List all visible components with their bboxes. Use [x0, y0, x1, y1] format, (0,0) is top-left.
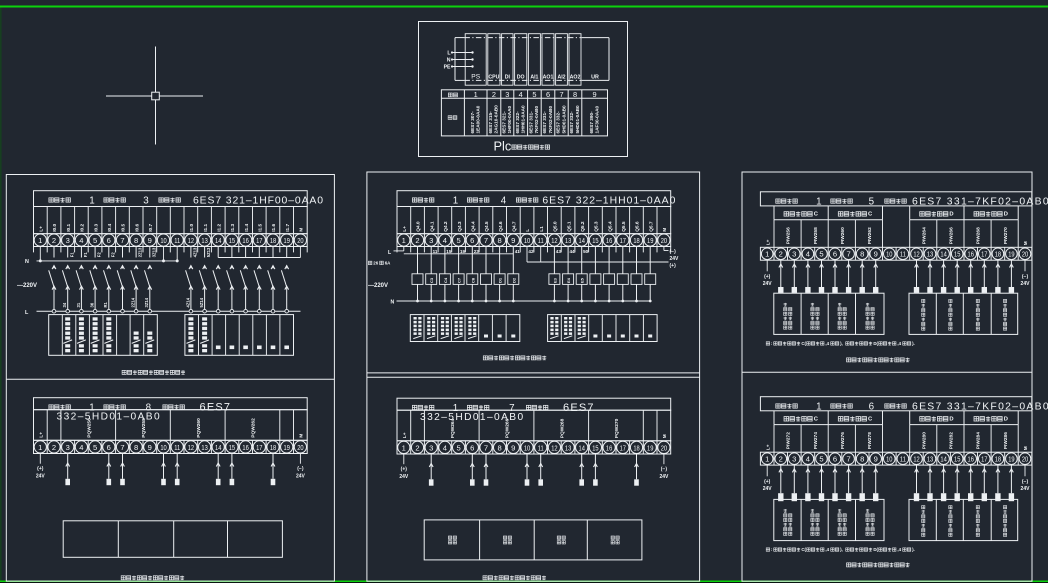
svg-text:11: 11 [900, 251, 906, 259]
svg-text:16: 16 [606, 238, 613, 246]
svg-text:12: 12 [913, 456, 920, 464]
svg-text:I0.7: I0.7 [148, 223, 154, 231]
svg-text:14: 14 [940, 456, 947, 464]
svg-text:5: 5 [532, 90, 536, 99]
svg-text:Q5.7: Q5.7 [648, 221, 654, 232]
svg-text:),: ), [840, 547, 843, 552]
svg-text:6ES7 315-: 6ES7 315- [488, 111, 493, 134]
svg-text:44: 44 [570, 249, 576, 254]
svg-text:24V: 24V [1021, 281, 1031, 287]
svg-text:7: 7 [120, 443, 124, 452]
svg-text:C3: C3 [429, 277, 434, 283]
svg-text:6: 6 [107, 236, 111, 245]
svg-text:PIW258: PIW258 [813, 227, 819, 244]
svg-text:1: 1 [402, 236, 406, 245]
svg-text:F1: F1 [69, 252, 74, 258]
svg-text:I0.1: I0.1 [66, 223, 72, 231]
svg-text:2: 2 [779, 455, 783, 464]
svg-text:19: 19 [1008, 251, 1015, 259]
svg-text:31: 31 [76, 302, 81, 307]
svg-text:9: 9 [874, 250, 878, 259]
svg-text:16: 16 [242, 444, 249, 452]
svg-text:PIW274: PIW274 [813, 432, 819, 449]
svg-text:14: 14 [215, 238, 222, 246]
svg-text:I1.4: I1.4 [244, 223, 250, 231]
svg-text:1: 1 [38, 443, 42, 452]
svg-text:4: 4 [806, 455, 810, 464]
svg-text:19: 19 [460, 249, 466, 254]
svg-text:UR: UR [591, 75, 599, 81]
svg-text:6ES7: 6ES7 [563, 402, 595, 414]
svg-text:I0.0: I0.0 [52, 223, 58, 231]
svg-text:8: 8 [573, 90, 577, 99]
svg-text:I0.4: I0.4 [107, 223, 113, 231]
svg-text:3: 3 [792, 250, 796, 259]
svg-text:13: 13 [927, 456, 934, 464]
svg-text:7: 7 [484, 443, 488, 452]
svg-text:PQW264: PQW264 [450, 418, 456, 438]
svg-text:Q5.6: Q5.6 [635, 221, 641, 232]
svg-text:19: 19 [284, 238, 291, 246]
svg-text:M: M [299, 434, 305, 438]
svg-text:Q5.0: Q5.0 [553, 221, 559, 232]
svg-text:C4: C4 [443, 277, 448, 283]
svg-text:4: 4 [443, 443, 447, 452]
svg-text:L+: L+ [39, 226, 45, 232]
svg-text:24V: 24V [36, 474, 46, 480]
svg-text:4: 4 [501, 195, 507, 206]
svg-text:3Z13: 3Z13 [151, 247, 156, 257]
svg-text:Q5.1: Q5.1 [566, 221, 572, 232]
svg-text:PIW268: PIW268 [976, 227, 982, 244]
svg-text:6: 6 [833, 250, 837, 259]
svg-text:6ES7 321-: 6ES7 321- [502, 111, 507, 134]
svg-text:Q5.5: Q5.5 [621, 221, 627, 232]
svg-text:14: 14 [940, 251, 947, 259]
svg-text:8: 8 [497, 443, 501, 452]
svg-text:I1.6: I1.6 [271, 223, 277, 231]
svg-text:9: 9 [511, 443, 515, 452]
svg-text:13: 13 [565, 445, 572, 453]
svg-text:11: 11 [900, 456, 906, 464]
svg-text:E4: E4 [566, 277, 571, 283]
svg-text:11: 11 [174, 444, 180, 452]
svg-text:6: 6 [546, 90, 550, 99]
svg-text:3: 3 [66, 443, 70, 452]
svg-text:5Z14: 5Z14 [199, 297, 204, 307]
svg-text:M: M [1023, 446, 1029, 450]
svg-text:2: 2 [52, 236, 56, 245]
svg-text:20: 20 [1022, 456, 1029, 464]
svg-text:3: 3 [505, 90, 509, 99]
svg-text:PQW262: PQW262 [251, 418, 257, 438]
svg-text:Q5.2: Q5.2 [580, 221, 586, 232]
svg-text:6ES7 332-: 6ES7 332- [556, 111, 561, 134]
svg-text:42: 42 [528, 249, 534, 254]
svg-text:50: 50 [583, 249, 589, 254]
svg-text:6ES7 322-: 6ES7 322- [515, 111, 520, 134]
svg-text:PIW260: PIW260 [840, 227, 846, 244]
svg-text:2Z13: 2Z13 [138, 247, 143, 257]
svg-text:7: 7 [846, 250, 850, 259]
svg-text:PIW276: PIW276 [840, 432, 846, 449]
svg-text:6A: 6A [385, 260, 391, 265]
svg-text:I0.6: I0.6 [134, 223, 140, 231]
svg-text:7: 7 [484, 236, 488, 245]
svg-text:1HH01-0AA0: 1HH01-0AA0 [521, 105, 526, 134]
svg-text:6: 6 [869, 401, 875, 412]
svg-text:1: 1 [765, 455, 769, 464]
svg-text:1EA00-0AA0: 1EA00-0AA0 [476, 105, 481, 133]
svg-text:AO1: AO1 [543, 75, 554, 81]
svg-text:19: 19 [647, 445, 654, 453]
svg-text:18: 18 [270, 238, 277, 246]
svg-text:(−): (−) [297, 466, 304, 472]
svg-text:L: L [525, 229, 531, 232]
svg-text:3: 3 [792, 455, 796, 464]
svg-text:D2: D2 [511, 277, 516, 283]
svg-text:23: 23 [474, 249, 480, 254]
svg-text:1: 1 [474, 90, 478, 99]
svg-text:—220V: —220V [17, 283, 37, 289]
svg-text:18: 18 [995, 456, 1002, 464]
svg-text:2AG10-0AB0: 2AG10-0AB0 [494, 105, 499, 134]
svg-text:8: 8 [134, 443, 138, 452]
svg-text:24V: 24V [1021, 486, 1031, 492]
svg-text:PIW262: PIW262 [867, 227, 873, 244]
svg-text:F1: F1 [83, 252, 88, 258]
svg-text:17: 17 [981, 251, 988, 259]
svg-text:F2: F2 [97, 252, 102, 258]
svg-text:1: 1 [38, 236, 42, 245]
svg-text:6: 6 [470, 236, 474, 245]
svg-text:PIW282: PIW282 [949, 432, 955, 449]
svg-text:6ES7: 6ES7 [200, 402, 232, 414]
svg-text:11: 11 [433, 249, 438, 254]
svg-text:(−): (−) [1022, 274, 1029, 280]
svg-text:18: 18 [270, 444, 277, 452]
svg-text:PQW268: PQW268 [559, 418, 565, 438]
svg-text:5: 5 [819, 455, 823, 464]
svg-text:1: 1 [453, 195, 458, 206]
svg-text:PQW256: PQW256 [86, 418, 92, 438]
svg-text:PE: PE [444, 65, 451, 71]
svg-text:7: 7 [559, 90, 563, 99]
svg-text:43: 43 [556, 249, 562, 254]
svg-text:D(: D( [873, 341, 878, 346]
svg-text:Q4.3: Q4.3 [457, 221, 463, 232]
svg-text:PIW272: PIW272 [786, 432, 792, 449]
svg-text:D: D [1004, 417, 1008, 423]
svg-text:4: 4 [519, 90, 523, 99]
svg-text:4Z13: 4Z13 [193, 247, 198, 257]
svg-text:AO2: AO2 [570, 75, 581, 81]
svg-text:24V: 24V [670, 256, 680, 262]
svg-text:19: 19 [284, 444, 291, 452]
svg-text:13: 13 [201, 238, 208, 246]
svg-text:16: 16 [968, 456, 975, 464]
svg-text:R1: R1 [103, 301, 108, 307]
svg-text:2Z14: 2Z14 [131, 297, 136, 307]
svg-text:L+: L+ [765, 239, 771, 245]
svg-text:PIW264: PIW264 [921, 227, 927, 244]
svg-text:16: 16 [242, 238, 249, 246]
svg-text:14: 14 [215, 444, 222, 452]
svg-text:3: 3 [429, 443, 433, 452]
svg-text:DO: DO [517, 75, 525, 81]
svg-text:36: 36 [90, 302, 95, 307]
svg-text:Q4.2: Q4.2 [443, 221, 449, 232]
svg-text:PQW258: PQW258 [141, 418, 147, 438]
svg-text:Q4.0: Q4.0 [416, 221, 422, 232]
svg-text:19: 19 [647, 238, 654, 246]
svg-text:12: 12 [551, 445, 558, 453]
svg-text:6ES7 321–1HF00–0AA0: 6ES7 321–1HF00–0AA0 [193, 196, 324, 207]
svg-text:14: 14 [579, 445, 586, 453]
svg-text:PIW286: PIW286 [1003, 432, 1009, 449]
svg-text:Q5.4: Q5.4 [607, 221, 613, 232]
svg-text:E5: E5 [580, 277, 585, 283]
svg-text:(+): (+) [401, 467, 408, 473]
svg-text:6ES7 331–7KF02–0AB0: 6ES7 331–7KF02–0AB0 [912, 402, 1048, 413]
svg-text:7: 7 [846, 455, 850, 464]
svg-text:I1.5: I1.5 [258, 223, 264, 231]
svg-text:17: 17 [981, 456, 988, 464]
svg-text:16: 16 [606, 445, 613, 453]
svg-text:4: 4 [443, 236, 447, 245]
svg-text:N: N [391, 299, 395, 305]
svg-text:5HD01-0AB0: 5HD01-0AB0 [561, 105, 566, 134]
svg-text:24V: 24V [763, 281, 773, 287]
svg-text:,4: ,4 [825, 547, 829, 552]
svg-text:9: 9 [874, 455, 878, 464]
svg-text:5Z13: 5Z13 [206, 247, 211, 257]
svg-text:4: 4 [79, 443, 83, 452]
svg-text:PIW256: PIW256 [786, 227, 792, 244]
svg-text:Q4.7: Q4.7 [512, 221, 518, 232]
svg-text:5: 5 [456, 443, 460, 452]
svg-text:Q4.4: Q4.4 [471, 221, 477, 232]
svg-text:9: 9 [148, 443, 152, 452]
svg-text:13: 13 [927, 251, 934, 259]
svg-text:6ES7 331-: 6ES7 331- [542, 111, 547, 134]
svg-text:20: 20 [297, 238, 304, 246]
svg-text:19: 19 [1008, 456, 1015, 464]
svg-text:11: 11 [538, 238, 544, 246]
svg-text:),: ), [840, 341, 843, 346]
svg-text:15: 15 [592, 238, 599, 246]
svg-text:10: 10 [160, 238, 167, 246]
svg-text:1: 1 [765, 250, 769, 259]
svg-text:PIW284: PIW284 [976, 432, 982, 449]
svg-text:15: 15 [229, 238, 236, 246]
svg-text:7KF02-0AB0: 7KF02-0AB0 [548, 105, 553, 133]
svg-text:PS: PS [471, 74, 480, 81]
svg-text:L+: L+ [39, 432, 45, 438]
svg-text:1: 1 [816, 401, 821, 412]
svg-text:2: 2 [415, 236, 419, 245]
svg-text:6ES7 307-: 6ES7 307- [470, 111, 475, 134]
svg-text:L1: L1 [539, 226, 545, 232]
svg-text:N: N [25, 259, 29, 265]
svg-text:13: 13 [565, 238, 572, 246]
svg-text:24V: 24V [296, 474, 306, 480]
svg-text:12: 12 [913, 251, 920, 259]
svg-text:1AF30-0AA0: 1AF30-0AA0 [594, 105, 599, 133]
svg-text:18: 18 [995, 251, 1002, 259]
svg-text:2: 2 [492, 90, 496, 99]
svg-text:15: 15 [229, 444, 236, 452]
svg-text:4: 4 [806, 250, 810, 259]
svg-text:D1: D1 [498, 277, 503, 283]
svg-text:1HF00-0AA0: 1HF00-0AA0 [507, 105, 512, 133]
svg-text:,4: ,4 [897, 547, 901, 552]
svg-text:(+): (+) [764, 479, 771, 485]
svg-text:5: 5 [819, 250, 823, 259]
svg-text:AI2: AI2 [557, 75, 565, 81]
svg-text:DI: DI [505, 75, 511, 81]
svg-text:24V: 24V [659, 474, 669, 480]
svg-text:I1.1: I1.1 [203, 223, 209, 231]
svg-text:5: 5 [93, 443, 97, 452]
svg-text:,4: ,4 [897, 341, 901, 346]
svg-text:6ES7 331-: 6ES7 331- [529, 111, 534, 134]
svg-text:17: 17 [256, 238, 263, 246]
svg-text:(+): (+) [764, 274, 771, 280]
svg-text:L+: L+ [765, 444, 771, 450]
svg-text:C8: C8 [470, 277, 475, 283]
svg-text:18: 18 [633, 238, 640, 246]
svg-text:Q4.1: Q4.1 [429, 221, 435, 232]
svg-text:(−): (−) [1022, 479, 1029, 485]
svg-text:1: 1 [816, 196, 821, 207]
svg-text:10: 10 [160, 444, 167, 452]
svg-text:).: ). [912, 341, 915, 346]
svg-text:(−): (−) [661, 467, 668, 473]
svg-text:I1.2: I1.2 [216, 223, 222, 231]
svg-text:5HD01-0AB0: 5HD01-0AB0 [575, 105, 580, 134]
svg-text:6ES7 322–1HH01–0AA0: 6ES7 322–1HH01–0AA0 [542, 196, 676, 207]
svg-text:C7: C7 [457, 277, 462, 283]
svg-text:(−): (−) [670, 249, 677, 255]
svg-text:20: 20 [297, 444, 304, 452]
svg-text:6ES7 390-: 6ES7 390- [589, 111, 594, 134]
svg-text:9: 9 [148, 236, 152, 245]
svg-text:10: 10 [886, 456, 893, 464]
svg-text:6: 6 [107, 443, 111, 452]
svg-text:20: 20 [661, 238, 668, 246]
svg-text:PQW260: PQW260 [196, 418, 202, 438]
svg-text:11: 11 [174, 238, 180, 246]
svg-text:6ES7 332-: 6ES7 332- [569, 111, 574, 134]
svg-text:M: M [299, 228, 305, 232]
svg-text:PIW266: PIW266 [949, 227, 955, 244]
svg-text:AI1: AI1 [530, 75, 538, 81]
svg-text:3: 3 [429, 236, 433, 245]
svg-text:N: N [447, 58, 451, 64]
svg-text:10: 10 [524, 238, 531, 246]
svg-text:D: D [949, 212, 953, 218]
svg-text:20: 20 [1022, 251, 1029, 259]
svg-text:8: 8 [860, 250, 864, 259]
svg-text:10: 10 [524, 445, 531, 453]
svg-text:13: 13 [201, 444, 208, 452]
svg-text:D: D [949, 417, 953, 423]
svg-text:Q4.6: Q4.6 [498, 221, 504, 232]
svg-text:7: 7 [120, 236, 124, 245]
svg-text:4: 4 [79, 236, 83, 245]
svg-text:10: 10 [886, 251, 893, 259]
svg-text:3Z14: 3Z14 [144, 297, 149, 307]
svg-text:M: M [662, 228, 668, 232]
svg-text:PIW278: PIW278 [867, 432, 873, 449]
svg-text:I0.2: I0.2 [80, 223, 86, 231]
svg-text:I0.3: I0.3 [93, 223, 99, 231]
svg-text:9: 9 [511, 236, 515, 245]
svg-text:D: D [1004, 212, 1008, 218]
svg-text:I1.0: I1.0 [189, 223, 195, 231]
svg-text:(+): (+) [37, 466, 44, 472]
svg-text:17: 17 [620, 238, 627, 246]
svg-text:15: 15 [954, 456, 961, 464]
svg-text:12: 12 [551, 238, 558, 246]
svg-text:34: 34 [62, 302, 67, 307]
svg-text:C(: C( [801, 547, 806, 552]
svg-text:M: M [1023, 241, 1029, 245]
svg-text:15: 15 [954, 251, 961, 259]
svg-text:F2: F2 [110, 252, 115, 258]
svg-text:5: 5 [93, 236, 97, 245]
svg-text:I1.3: I1.3 [230, 223, 236, 231]
svg-text:17: 17 [256, 444, 263, 452]
svg-text:6: 6 [833, 455, 837, 464]
svg-text:12: 12 [188, 238, 195, 246]
svg-text:9: 9 [593, 90, 597, 99]
svg-text:7KF02-0AB0: 7KF02-0AB0 [534, 105, 539, 133]
svg-text:8: 8 [134, 236, 138, 245]
svg-text:Q5.3: Q5.3 [594, 221, 600, 232]
svg-text:PIW280: PIW280 [921, 432, 927, 449]
svg-text:24V: 24V [399, 474, 409, 480]
svg-text:2: 2 [779, 250, 783, 259]
svg-text:15: 15 [592, 445, 599, 453]
svg-text:4Z14: 4Z14 [185, 297, 190, 307]
svg-text:E3: E3 [552, 277, 557, 283]
svg-text:2: 2 [52, 443, 56, 452]
svg-text:,4: ,4 [825, 341, 829, 346]
svg-text:C(: C( [801, 341, 806, 346]
svg-text:41: 41 [515, 249, 521, 254]
svg-text:L+: L+ [402, 432, 408, 438]
svg-text:2: 2 [415, 443, 419, 452]
svg-text:PIW270: PIW270 [1003, 227, 1009, 244]
svg-text:5: 5 [456, 236, 460, 245]
svg-text:6: 6 [470, 443, 474, 452]
svg-text:3: 3 [66, 236, 70, 245]
svg-text:15: 15 [446, 249, 452, 254]
svg-text:20: 20 [661, 445, 668, 453]
svg-text:Plc: Plc [494, 139, 512, 154]
svg-text:26: 26 [373, 260, 378, 265]
svg-text:11: 11 [538, 445, 544, 453]
svg-text:1: 1 [89, 195, 94, 206]
svg-text:17: 17 [620, 445, 627, 453]
svg-text:L+: L+ [402, 226, 408, 232]
svg-text:).: ). [912, 547, 915, 552]
svg-text:3: 3 [143, 195, 149, 206]
svg-text:M: M [662, 434, 668, 438]
svg-text:I1.7: I1.7 [285, 223, 291, 231]
